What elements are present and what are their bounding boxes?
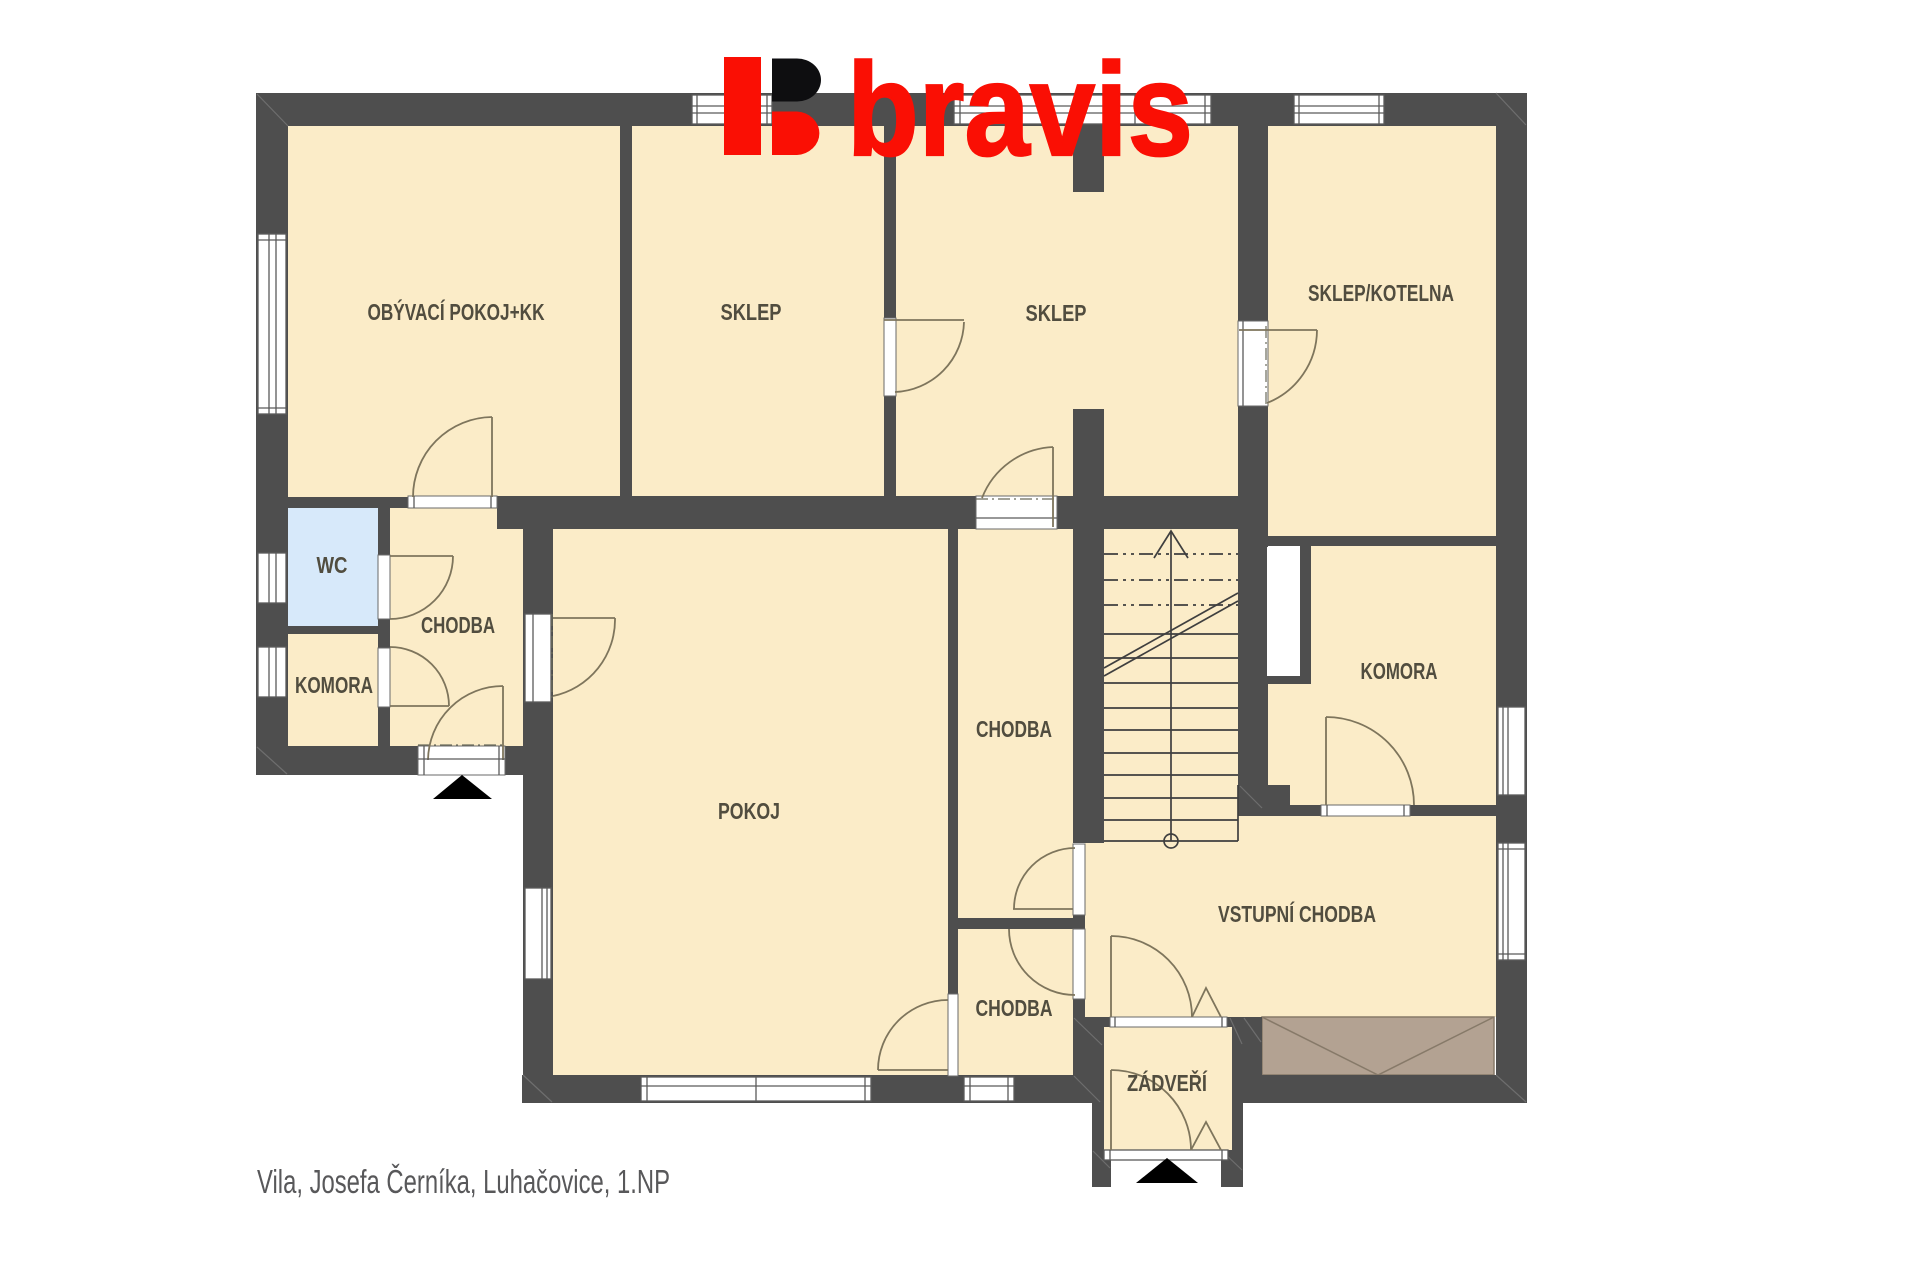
svg-text:CHODBA: CHODBA — [976, 995, 1053, 1021]
svg-text:VSTUPNÍ CHODBA: VSTUPNÍ CHODBA — [1218, 900, 1376, 927]
svg-text:SKLEP: SKLEP — [1026, 300, 1087, 326]
svg-text:KOMORA: KOMORA — [1361, 658, 1438, 684]
svg-text:CHODBA: CHODBA — [421, 612, 495, 638]
svg-text:KOMORA: KOMORA — [295, 672, 373, 698]
svg-text:OBÝVACÍ POKOJ+KK: OBÝVACÍ POKOJ+KK — [368, 298, 545, 325]
svg-text:SKLEP: SKLEP — [721, 299, 782, 325]
svg-text:SKLEP/KOTELNA: SKLEP/KOTELNA — [1308, 280, 1454, 306]
svg-text:ZÁDVEŘÍ: ZÁDVEŘÍ — [1127, 1069, 1207, 1096]
svg-text:bravis: bravis — [847, 36, 1193, 183]
svg-text:Vila, Josefa Černíka, Luhačovi: Vila, Josefa Černíka, Luhačovice, 1.NP — [257, 1163, 670, 1200]
svg-text:CHODBA: CHODBA — [976, 716, 1052, 742]
svg-text:WC: WC — [317, 552, 348, 578]
svg-text:POKOJ: POKOJ — [718, 798, 780, 824]
